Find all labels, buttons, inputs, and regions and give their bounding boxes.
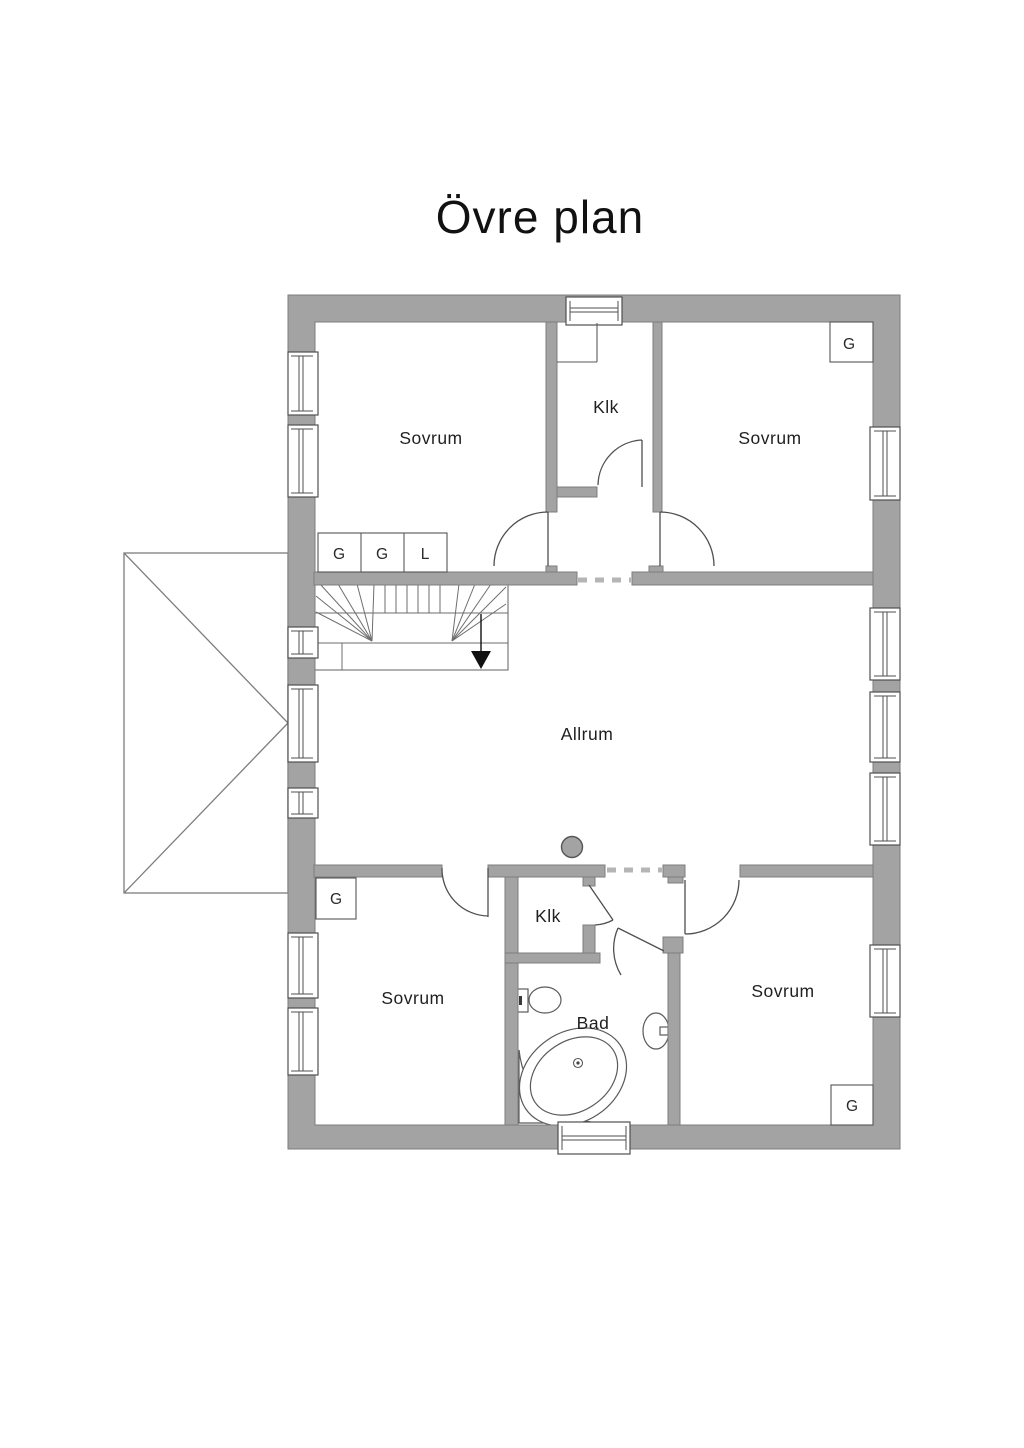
window: [870, 427, 900, 500]
wardrobe-label: G: [843, 336, 855, 353]
wardrobe-label: G: [376, 546, 388, 563]
door-arc: [494, 512, 548, 566]
room-labels: Sovrum Klk Sovrum Allrum Sovrum Klk Bad …: [381, 397, 814, 1033]
wardrobe-label: G: [333, 546, 345, 563]
staircase: [314, 584, 508, 670]
room-label-bathroom: Bad: [577, 1013, 610, 1033]
doors-layer: [442, 440, 739, 975]
page-title: Övre plan: [436, 191, 644, 243]
wardrobe-bottom-left: G: [316, 878, 356, 919]
wardrobe-bottom-right: G: [831, 1085, 873, 1125]
room-label-bedroom-bottom-left: Sovrum: [381, 988, 444, 1008]
window: [288, 933, 318, 998]
door-arc: [685, 880, 739, 934]
door-arc: [589, 885, 613, 925]
door-arc: [442, 868, 488, 917]
window: [288, 425, 318, 497]
window: [870, 945, 900, 1017]
wardrobe-label: G: [846, 1098, 858, 1115]
chimney: [562, 837, 583, 858]
toilet: [517, 987, 561, 1013]
window: [558, 1122, 630, 1154]
window: [288, 685, 318, 762]
window: [870, 773, 900, 845]
floor-plan-canvas: Övre plan: [0, 0, 1024, 1448]
room-label-closet-bottom: Klk: [535, 906, 561, 926]
door-arc: [614, 928, 664, 975]
room-label-bedroom-top-right: Sovrum: [738, 428, 801, 448]
window: [566, 297, 622, 325]
sink: [643, 1013, 669, 1049]
wardrobe-top-right: G: [830, 322, 873, 362]
window: [288, 627, 318, 658]
room-label-bedroom-bottom-right: Sovrum: [751, 981, 814, 1001]
room-label-living-room: Allrum: [561, 724, 614, 744]
room-label-closet-top: Klk: [593, 397, 619, 417]
window: [288, 352, 318, 415]
closet-shelf: [557, 323, 597, 362]
window: [870, 692, 900, 762]
roof-outline: [124, 553, 288, 893]
door-arc: [660, 512, 714, 566]
door-arc: [598, 440, 642, 487]
window: [288, 1008, 318, 1075]
wardrobe-label: G: [330, 891, 342, 908]
room-label-bedroom-top-left: Sovrum: [399, 428, 462, 448]
wardrobe-row-top-left: G G L: [318, 533, 447, 572]
window: [870, 608, 900, 680]
window: [288, 788, 318, 818]
wardrobe-label: L: [421, 546, 430, 563]
